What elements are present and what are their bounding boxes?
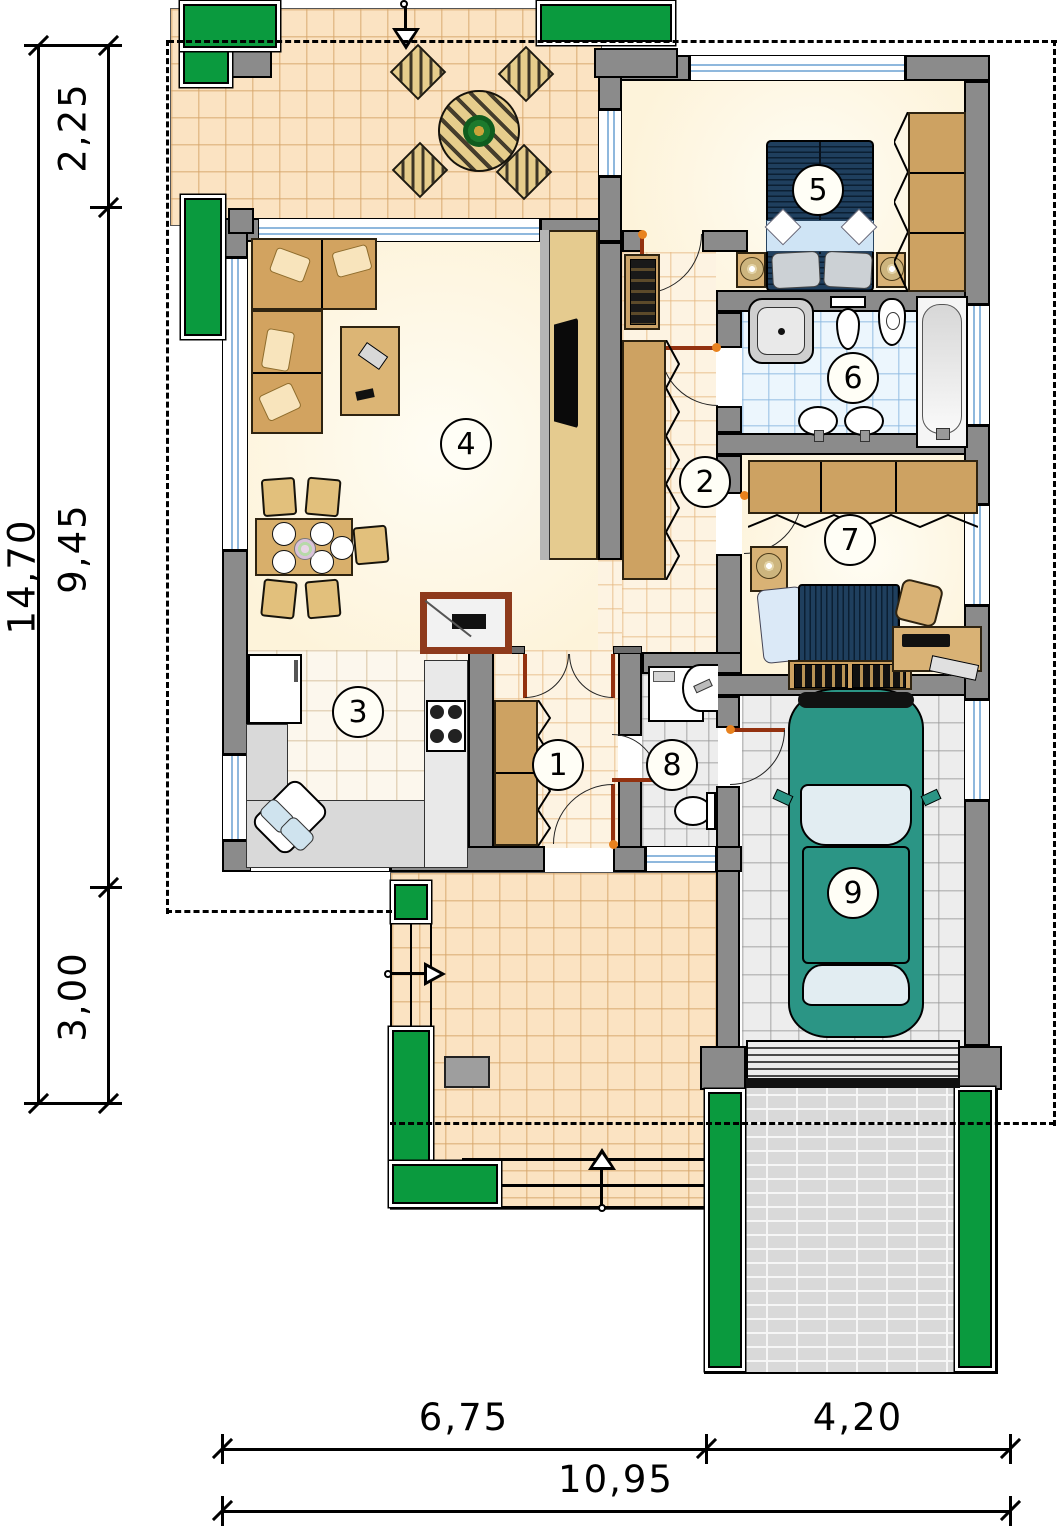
burner xyxy=(430,705,444,719)
room-number: 1 xyxy=(548,748,567,783)
wardrobe-divider xyxy=(496,772,536,774)
wall-garage-corner xyxy=(700,1046,746,1090)
plate xyxy=(272,522,296,546)
sofa-divider xyxy=(253,372,321,374)
roof-outline-right xyxy=(1053,40,1056,1126)
terrace-plant xyxy=(463,115,495,147)
dining-chair xyxy=(304,477,341,518)
pillow xyxy=(771,251,821,289)
shower-drain xyxy=(778,328,785,335)
steps-arrow-stem xyxy=(388,972,430,975)
dining-chair xyxy=(304,579,341,620)
wall xyxy=(702,230,748,252)
dim-ext xyxy=(24,1102,122,1105)
dim-ext xyxy=(221,1496,224,1526)
steps-arrow-dot xyxy=(384,970,392,978)
hall-cabinet-shelves xyxy=(630,259,656,325)
dining-chair xyxy=(261,477,298,517)
window-wc xyxy=(646,846,716,872)
dim-ext xyxy=(1009,1434,1012,1464)
dim-label-bottom-total: 10,95 xyxy=(536,1458,696,1501)
dim-line-bottom-total xyxy=(222,1510,1010,1513)
room-number: 2 xyxy=(695,465,714,500)
wall-front xyxy=(613,846,646,872)
pillow xyxy=(823,251,873,289)
burner xyxy=(430,729,444,743)
floor-plan: 1 2 3 4 5 6 7 8 9 14,70 2,25 9,45 3,00 6… xyxy=(0,0,1057,1529)
burner xyxy=(448,729,462,743)
wardrobe-divider xyxy=(910,172,964,174)
window-bedroom5 xyxy=(690,55,905,81)
wall-kitchen-entrance xyxy=(468,650,494,848)
bedroom7-wardrobe xyxy=(748,460,978,514)
dim-ext xyxy=(705,1434,708,1464)
wardrobe-doors-zigzag xyxy=(894,112,908,292)
toilet-tank xyxy=(830,296,866,308)
door-hinge xyxy=(609,840,618,849)
fridge-handle xyxy=(294,660,298,682)
wall-thin xyxy=(613,646,642,654)
side-steps-divider xyxy=(410,920,412,1030)
planter xyxy=(392,1164,498,1204)
room-label-9: 9 xyxy=(827,867,879,919)
hedge xyxy=(958,1090,992,1368)
sofa-divider xyxy=(321,240,323,308)
bathtub-inner xyxy=(922,304,962,434)
door-hinge xyxy=(712,343,721,352)
bidet-hole xyxy=(886,312,900,330)
wall xyxy=(964,800,990,1046)
wall xyxy=(716,312,742,348)
tv-cabinet-edge xyxy=(540,230,550,560)
roof-outline-left xyxy=(166,40,169,914)
garage-shutter xyxy=(746,1040,960,1080)
nightstand-lamp xyxy=(740,257,764,281)
room-number: 5 xyxy=(808,173,827,208)
hall-wardrobe xyxy=(622,340,666,580)
terrace-pillar xyxy=(228,48,272,78)
car-front-trim xyxy=(798,692,914,708)
hedge xyxy=(708,1092,742,1368)
garage-shutter-rail xyxy=(746,1078,960,1088)
room-number: 7 xyxy=(840,523,859,558)
nightstand-lamp xyxy=(756,553,782,579)
room-number: 6 xyxy=(843,361,862,396)
porch-arrow-dot xyxy=(598,1204,606,1212)
plate xyxy=(272,550,296,574)
room-label-1: 1 xyxy=(532,739,584,791)
wardrobe-divider xyxy=(895,462,897,512)
tv xyxy=(554,318,578,428)
roof-outline-step xyxy=(166,910,392,913)
wall-garage-corner xyxy=(956,1046,1002,1090)
dim-label-left-seg-1: 2,25 xyxy=(52,68,95,188)
wall xyxy=(964,81,990,305)
window-garage xyxy=(964,700,990,800)
porch-step-line-2 xyxy=(462,1184,718,1187)
wardrobe-divider xyxy=(820,462,822,512)
terrace-pillar xyxy=(594,48,678,78)
porch-edge xyxy=(390,1206,720,1209)
window-terrace-side xyxy=(598,110,622,176)
room-number: 3 xyxy=(348,695,367,730)
wall-front xyxy=(716,846,742,872)
driveway-paving xyxy=(704,1064,998,1374)
dim-ext xyxy=(90,206,122,209)
room-label-8: 8 xyxy=(646,739,698,791)
wardrobe-divider xyxy=(910,232,964,234)
car-rear-window xyxy=(802,964,910,1006)
dining-chair xyxy=(260,578,298,619)
roof-outline-top xyxy=(168,40,1057,43)
terrace-pillar xyxy=(228,208,254,234)
wall xyxy=(716,406,742,433)
dim-label-bottom-seg-2: 4,20 xyxy=(778,1396,938,1439)
single-bed xyxy=(798,584,900,666)
sink-tap xyxy=(814,430,824,442)
dining-chair xyxy=(352,525,389,566)
plate xyxy=(330,536,354,560)
dim-label-bottom-seg-1: 6,75 xyxy=(384,1396,544,1439)
sink-tap xyxy=(860,430,870,442)
door-hinge xyxy=(638,230,647,239)
room-label-7: 7 xyxy=(824,514,876,566)
dim-label-left-seg-2: 9,45 xyxy=(52,489,95,609)
porch-step-line-1 xyxy=(462,1158,718,1161)
wall xyxy=(598,176,622,242)
room-label-2: 2 xyxy=(679,456,731,508)
room-number: 8 xyxy=(662,748,681,783)
dim-ext xyxy=(24,44,122,47)
dim-ext xyxy=(221,1434,224,1464)
dim-line-bottom-segments xyxy=(222,1448,1010,1451)
room-label-3: 3 xyxy=(332,686,384,738)
wall xyxy=(716,786,740,1048)
books xyxy=(794,664,848,688)
washer-panel xyxy=(653,671,675,682)
door-mat xyxy=(444,1056,490,1088)
wc-toilet-tank xyxy=(706,792,716,830)
room-number: 4 xyxy=(456,427,475,462)
window-kitchen-left xyxy=(222,755,248,840)
planter xyxy=(540,4,672,42)
wall xyxy=(618,650,642,736)
coffee-table xyxy=(340,326,400,416)
room-number: 9 xyxy=(843,876,862,911)
centerpiece xyxy=(294,538,316,560)
dim-ext xyxy=(1009,1496,1012,1526)
wall xyxy=(905,55,990,81)
burner xyxy=(448,705,462,719)
wall xyxy=(618,780,642,848)
room-label-6: 6 xyxy=(827,352,879,404)
dim-label-left-total: 14,70 xyxy=(1,497,44,657)
wall xyxy=(222,550,248,755)
bedroom5-wardrobe xyxy=(908,112,966,292)
window-living-left xyxy=(222,258,248,550)
porch-arrow-stem xyxy=(600,1166,603,1208)
kitchen-counter-column xyxy=(424,660,468,868)
room-label-5: 5 xyxy=(792,164,844,216)
entry-arrow-dot xyxy=(400,0,408,8)
door-hinge xyxy=(726,725,735,734)
dim-label-left-seg-3: 3,00 xyxy=(52,937,95,1057)
wardrobe-doors-zigzag xyxy=(666,340,680,580)
keyboard xyxy=(902,634,950,647)
wall-living-hall xyxy=(598,242,622,560)
room-label-4: 4 xyxy=(440,418,492,470)
wall xyxy=(716,696,740,728)
bathtub-tap xyxy=(936,428,950,440)
roof-outline-bottom xyxy=(390,1122,1055,1125)
car-windshield xyxy=(800,784,912,846)
planter xyxy=(394,884,428,920)
planter xyxy=(184,198,222,336)
dim-ext xyxy=(90,886,122,889)
planter xyxy=(392,1030,430,1166)
